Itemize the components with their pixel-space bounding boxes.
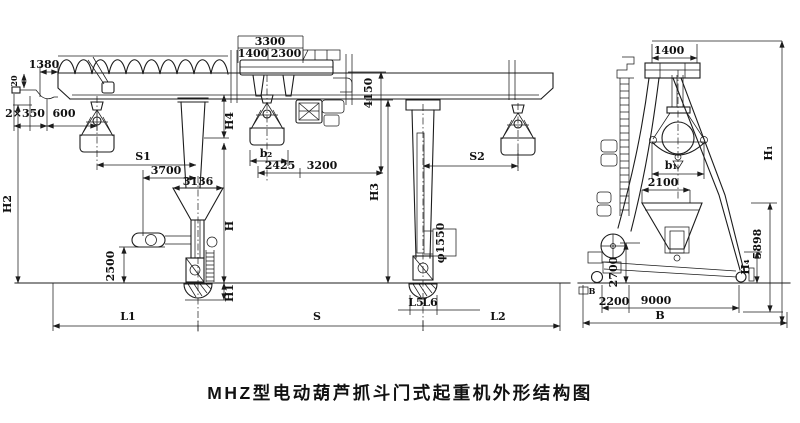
dim-H: H (223, 221, 236, 231)
front-view: 1380 20 2×350 600 H2 2500 S1 3700 3136 3… (1, 35, 570, 332)
crane-structure-drawing: 1380 20 2×350 600 H2 2500 S1 3700 3136 3… (0, 0, 800, 423)
rear-leg (618, 78, 649, 228)
trolley-pendant-right (283, 75, 294, 96)
side-view: 1400 b₁ 2100 2700 B 2200 9000 B H₁ 5898 (578, 41, 790, 328)
trolley-pendant-left (253, 75, 264, 96)
dim-S2: S2 (469, 150, 485, 163)
rail-stop (579, 287, 588, 294)
dim-L2: L2 (490, 310, 505, 323)
dim-H1: H1 (223, 284, 236, 302)
dim-b1: b₁ (665, 159, 678, 172)
dim-S: S (313, 310, 321, 323)
discharge-chute (191, 220, 204, 258)
dim-5898: 5898 (751, 228, 764, 259)
dim-L1: L1 (120, 310, 135, 323)
engineering-drawing-page: 1380 20 2×350 600 H2 2500 S1 3700 3136 3… (0, 0, 800, 423)
dim-L6: L6 (422, 296, 438, 309)
front-dimensions: 1380 20 2×350 600 H2 2500 S1 3700 3136 3… (1, 35, 560, 331)
dim-B-base: B (655, 309, 664, 322)
dim-H4-side: H₄ (739, 259, 752, 274)
main-girder (58, 50, 553, 105)
dim-2500: 2500 (104, 250, 117, 281)
left-leg-hopper-assembly (132, 98, 223, 332)
travel-wheel-left (592, 272, 603, 283)
dim-4150: 4150 (362, 77, 375, 108)
dim-2425: 2425 (265, 159, 296, 172)
dim-2200: 2200 (599, 295, 630, 308)
side-dimensions: 1400 b₁ 2100 2700 B 2200 9000 B H₁ 5898 (583, 41, 787, 328)
dim-B-left: B (589, 286, 596, 296)
dim-3200: 3200 (307, 159, 338, 172)
dim-1400-side: 1400 (654, 44, 685, 57)
dim-H3: H3 (368, 183, 381, 201)
dim-1380: 1380 (29, 58, 60, 71)
dim-S1: S1 (135, 150, 151, 163)
dim-3136: 3136 (183, 175, 214, 188)
dim-1400-trolley: 1400 (238, 47, 269, 60)
dim-H4: H4 (223, 112, 236, 130)
dim-H2: H2 (1, 195, 14, 213)
dim-wheel-diameter: φ1550 (434, 222, 447, 263)
head-bracket (617, 57, 634, 78)
dim-20: 20 (9, 75, 19, 87)
crane-head (645, 63, 700, 78)
dim-2700: 2700 (607, 256, 620, 287)
dim-2100: 2100 (648, 176, 679, 189)
dim-600: 600 (53, 107, 76, 120)
power-feed-bracket (12, 87, 58, 99)
dim-9000: 9000 (641, 294, 672, 307)
sill-tie (602, 262, 737, 277)
dim-2x350: 2×350 (5, 107, 45, 120)
dim-3700: 3700 (151, 164, 182, 177)
dim-2300: 2300 (271, 47, 302, 60)
festoon-cable (58, 56, 228, 93)
dim-H1-side: H₁ (762, 145, 775, 160)
page-title: MHZ型电动葫芦抓斗门式起重机外形结构图 (207, 383, 592, 403)
leg-ladder (206, 250, 214, 282)
access-ladder (620, 78, 629, 216)
